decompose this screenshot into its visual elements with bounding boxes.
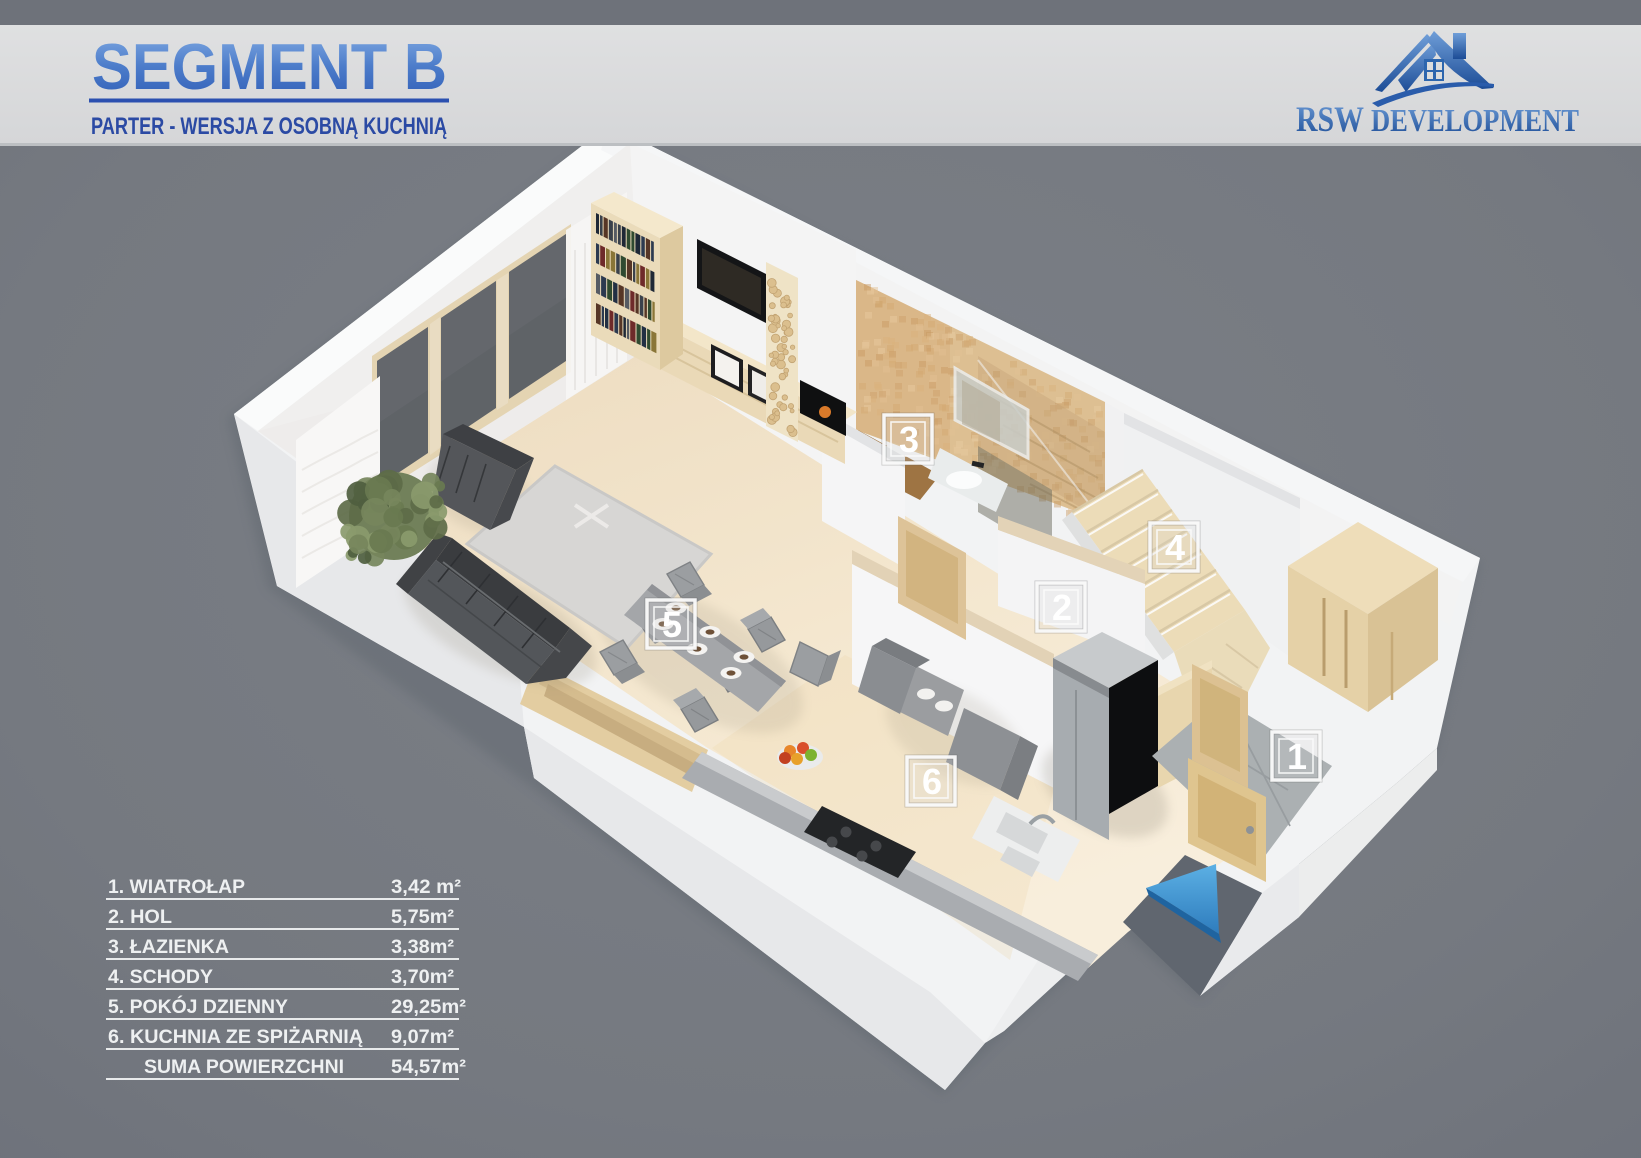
svg-text:6. KUCHNIA ZE SPIŻARNIĄ: 6. KUCHNIA ZE SPIŻARNIĄ — [108, 1027, 363, 1048]
svg-text:5: 5 — [662, 604, 682, 645]
svg-text:1. WIATROŁAP: 1. WIATROŁAP — [108, 877, 245, 898]
svg-text:5. POKÓJ DZIENNY: 5. POKÓJ DZIENNY — [108, 996, 288, 1018]
svg-text:PARTER - WERSJA Z OSOBNĄ KUCHN: PARTER - WERSJA Z OSOBNĄ KUCHNIĄ — [91, 113, 447, 140]
svg-text:SUMA POWIERZCHNI: SUMA POWIERZCHNI — [144, 1057, 344, 1078]
svg-text:3,38m²: 3,38m² — [391, 937, 454, 958]
svg-text:5,75m²: 5,75m² — [391, 907, 454, 928]
svg-text:4: 4 — [1165, 527, 1185, 568]
svg-text:3,70m²: 3,70m² — [391, 967, 454, 988]
svg-text:3,42 m²: 3,42 m² — [391, 877, 461, 898]
svg-text:6: 6 — [922, 761, 942, 802]
svg-text:1: 1 — [1287, 736, 1307, 777]
svg-text:RSW: RSW — [1296, 99, 1364, 139]
svg-text:54,57m²: 54,57m² — [391, 1057, 466, 1078]
svg-text:3: 3 — [899, 419, 919, 460]
svg-text:4. SCHODY: 4. SCHODY — [108, 967, 213, 988]
svg-text:3. ŁAZIENKA: 3. ŁAZIENKA — [108, 937, 229, 958]
svg-text:9,07m²: 9,07m² — [391, 1027, 454, 1048]
svg-text:SEGMENT B: SEGMENT B — [92, 30, 447, 103]
svg-text:2. HOL: 2. HOL — [108, 907, 172, 928]
svg-text:DEVELOPMENT: DEVELOPMENT — [1371, 102, 1579, 138]
svg-text:2: 2 — [1052, 587, 1072, 628]
svg-text:29,25m²: 29,25m² — [391, 997, 466, 1018]
